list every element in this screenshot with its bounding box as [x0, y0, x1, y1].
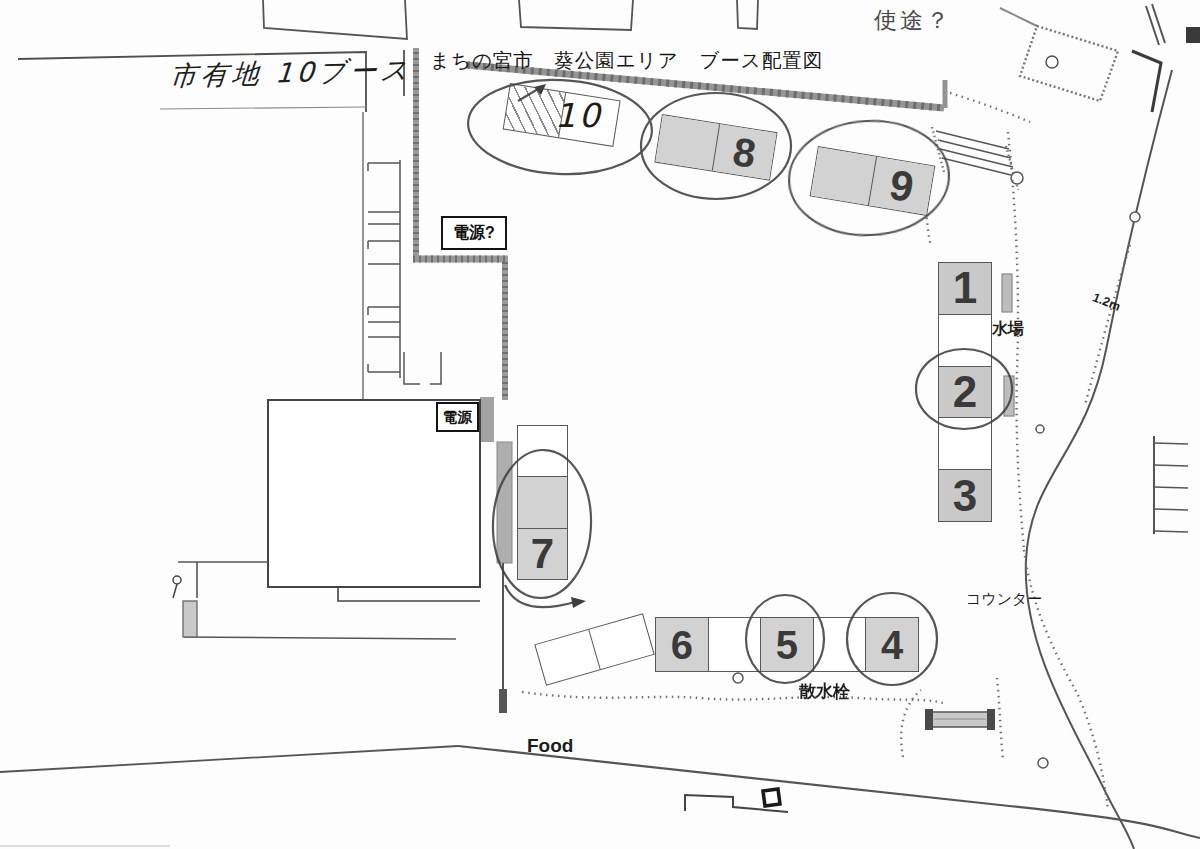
- booth-6-number: 6: [671, 625, 693, 665]
- booth-4-cell: 4: [865, 618, 918, 671]
- curved-path-edge: [1026, 70, 1172, 849]
- vegetation-stipple: [522, 93, 1130, 810]
- ladder-detail: [368, 160, 400, 378]
- booth-9-cell: [811, 147, 876, 205]
- power-box: 電源: [436, 402, 479, 432]
- booth-1-cell: 1: [939, 263, 991, 314]
- booth-4-number: 4: [881, 625, 903, 665]
- water-place-label: 水場: [992, 320, 1024, 338]
- empty-cell: [518, 426, 567, 476]
- power-query-box: 電源?: [441, 216, 507, 250]
- booth-8-number: 8: [730, 130, 758, 173]
- gate-post: [173, 576, 197, 637]
- stairs: [932, 127, 1018, 190]
- booth-2-number: 2: [953, 370, 977, 414]
- booth-10-number: 10: [555, 96, 603, 135]
- booth-3-cell: 3: [939, 469, 991, 521]
- booth-9-number: 9: [887, 163, 917, 208]
- booth-6-cell: 6: [656, 618, 708, 671]
- map-title: まちの宮市 葵公園エリア ブース配置図: [430, 50, 823, 71]
- booth-2-cell: 2: [939, 366, 991, 418]
- booth-layout-map: 10 8 9 1 2 3 7 6: [0, 0, 1200, 849]
- booth-7-cell: 7: [518, 528, 567, 579]
- booth-row-6-5-4: 6 5 4: [655, 617, 919, 672]
- bench: [925, 709, 995, 730]
- booth-3-number: 3: [953, 474, 977, 518]
- bottom-step-marks: [685, 789, 788, 812]
- counter-label: コウンター: [966, 591, 1042, 608]
- empty-cell: [939, 417, 991, 469]
- water-fixtures: [1002, 274, 1014, 416]
- booth-column-1-2-3: 1 2 3: [938, 262, 992, 522]
- booth-8-cell: [655, 115, 719, 170]
- booth-8-cell: 8: [712, 124, 777, 179]
- booth-7-block: 7: [517, 425, 568, 580]
- land-note: 市有地 10ブース: [169, 55, 413, 91]
- bottom-path: [0, 746, 1200, 846]
- food-label: Food: [527, 736, 573, 757]
- booth-7-number: 7: [531, 533, 554, 575]
- empty-cell: [708, 618, 761, 671]
- door-marks: [404, 352, 441, 384]
- usage-note: 使途？: [874, 8, 952, 33]
- empty-cell: [939, 314, 991, 366]
- sprinkler-valve-label: 散水栓: [799, 683, 850, 702]
- booth-5-cell: 5: [760, 618, 813, 671]
- booth-7-cell: [518, 476, 567, 527]
- booth-9-cell: 9: [868, 157, 934, 215]
- empty-cell: [813, 618, 866, 671]
- booth-5-number: 5: [776, 625, 798, 665]
- booth-1-number: 1: [953, 266, 977, 310]
- note-box-outline: [18, 52, 366, 400]
- planter-bed: [1000, 4, 1200, 112]
- right-edge-steps: [1154, 436, 1188, 534]
- boundary-wall: [413, 48, 512, 713]
